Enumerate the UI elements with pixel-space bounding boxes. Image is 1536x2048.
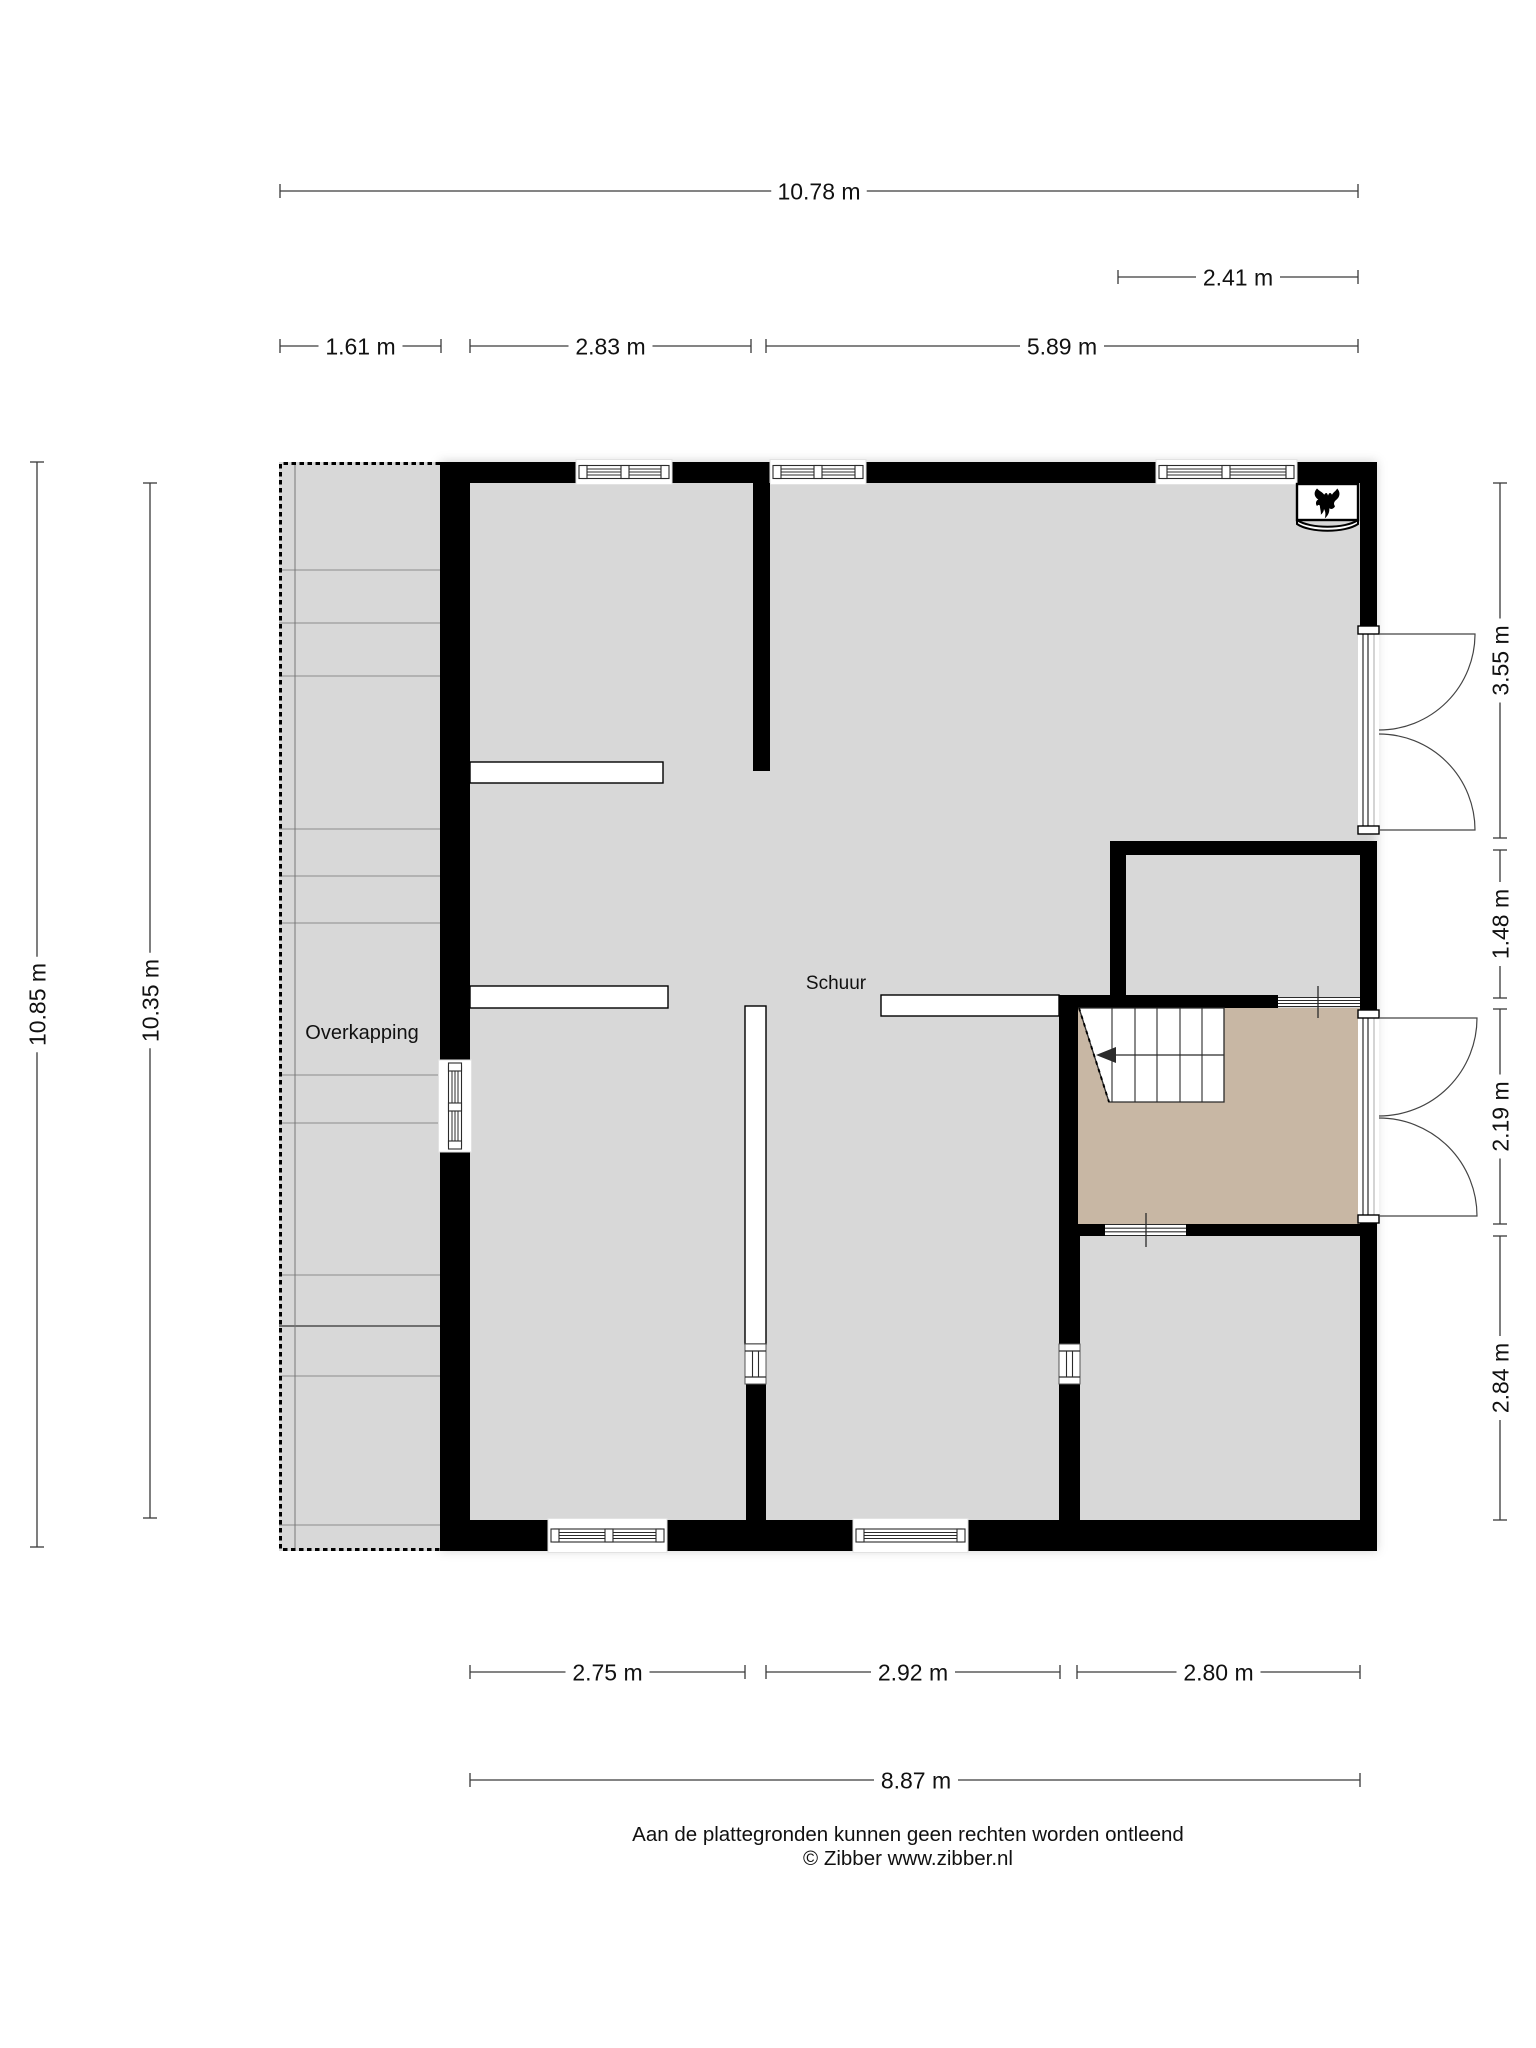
svg-text:2.19 m: 2.19 m: [1488, 1081, 1514, 1151]
svg-text:© Zibber www.zibber.nl: © Zibber www.zibber.nl: [803, 1847, 1013, 1870]
svg-text:8.87 m: 8.87 m: [881, 1768, 951, 1794]
svg-text:3.55 m: 3.55 m: [1488, 625, 1514, 695]
svg-text:1.48 m: 1.48 m: [1488, 889, 1514, 959]
svg-text:2.75 m: 2.75 m: [572, 1660, 642, 1686]
svg-text:Overkapping: Overkapping: [305, 1022, 418, 1044]
svg-text:10.35 m: 10.35 m: [138, 959, 164, 1042]
svg-text:10.78 m: 10.78 m: [777, 179, 860, 205]
svg-text:Schuur: Schuur: [806, 973, 867, 994]
svg-text:2.41 m: 2.41 m: [1203, 265, 1273, 291]
svg-text:5.89 m: 5.89 m: [1027, 334, 1097, 360]
svg-text:2.80 m: 2.80 m: [1183, 1660, 1253, 1686]
svg-text:2.83 m: 2.83 m: [575, 334, 645, 360]
svg-text:Aan de plattegronden kunnen ge: Aan de plattegronden kunnen geen rechten…: [632, 1823, 1184, 1846]
svg-text:2.92 m: 2.92 m: [878, 1660, 948, 1686]
svg-text:2.84 m: 2.84 m: [1488, 1343, 1514, 1413]
svg-text:1.61 m: 1.61 m: [325, 334, 395, 360]
svg-text:10.85 m: 10.85 m: [25, 963, 51, 1046]
